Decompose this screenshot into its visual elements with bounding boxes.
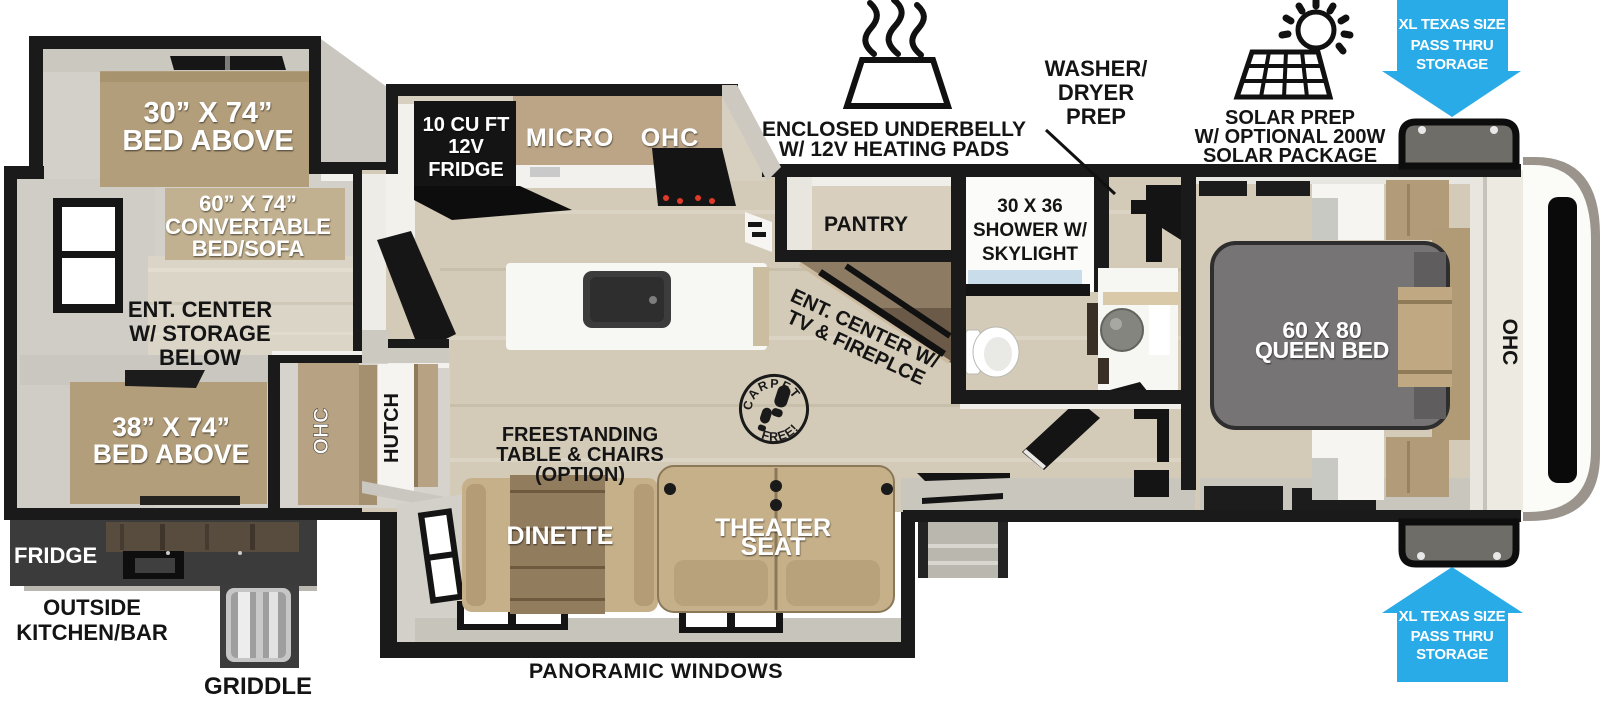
- svg-text:SEAT: SEAT: [741, 533, 806, 561]
- svg-text:TABLE & CHAIRS: TABLE & CHAIRS: [496, 444, 663, 466]
- svg-text:FRIDGE: FRIDGE: [428, 159, 504, 181]
- svg-text:ENT. CENTER: ENT. CENTER: [128, 297, 272, 322]
- svg-text:XL TEXAS SIZE: XL TEXAS SIZE: [1399, 608, 1506, 625]
- svg-text:60” X 74”: 60” X 74”: [199, 191, 297, 216]
- svg-text:PANTRY: PANTRY: [824, 213, 908, 236]
- svg-text:STORAGE: STORAGE: [1416, 56, 1488, 73]
- svg-text:XL TEXAS SIZE: XL TEXAS SIZE: [1399, 16, 1506, 33]
- svg-text:KITCHEN/BAR: KITCHEN/BAR: [16, 620, 168, 645]
- svg-text:OUTSIDE: OUTSIDE: [43, 595, 141, 620]
- svg-text:PREP: PREP: [1066, 104, 1126, 129]
- svg-text:OHC: OHC: [310, 408, 333, 455]
- svg-text:OHC: OHC: [1498, 319, 1521, 366]
- svg-text:10 CU FT: 10 CU FT: [423, 114, 510, 136]
- svg-text:OHC: OHC: [641, 124, 700, 152]
- svg-text:W/ STORAGE: W/ STORAGE: [129, 321, 270, 346]
- svg-text:W/ 12V HEATING PADS: W/ 12V HEATING PADS: [779, 138, 1009, 161]
- svg-text:(OPTION): (OPTION): [535, 464, 625, 486]
- svg-text:38” X 74”: 38” X 74”: [112, 412, 230, 442]
- svg-text:WASHER/: WASHER/: [1045, 56, 1148, 81]
- svg-text:30 X 36: 30 X 36: [997, 196, 1063, 217]
- svg-text:HUTCH: HUTCH: [381, 393, 403, 463]
- svg-text:PASS THRU: PASS THRU: [1411, 628, 1494, 645]
- svg-text:BED ABOVE: BED ABOVE: [122, 125, 293, 157]
- svg-text:DINETTE: DINETTE: [507, 522, 614, 550]
- svg-text:BED/SOFA: BED/SOFA: [192, 236, 305, 261]
- svg-text:PASS THRU: PASS THRU: [1411, 37, 1494, 54]
- svg-text:STORAGE: STORAGE: [1416, 646, 1488, 663]
- svg-text:GRIDDLE: GRIDDLE: [204, 673, 312, 700]
- svg-text:QUEEN BED: QUEEN BED: [1255, 337, 1389, 363]
- svg-text:BED ABOVE: BED ABOVE: [93, 439, 250, 469]
- svg-text:DRYER: DRYER: [1058, 80, 1134, 105]
- svg-text:BELOW: BELOW: [159, 345, 241, 370]
- svg-text:SOLAR PACKAGE: SOLAR PACKAGE: [1203, 145, 1377, 167]
- svg-text:FREESTANDING: FREESTANDING: [502, 424, 658, 446]
- svg-text:PANORAMIC WINDOWS: PANORAMIC WINDOWS: [529, 659, 783, 683]
- svg-text:SHOWER W/: SHOWER W/: [973, 220, 1088, 241]
- svg-text:FRIDGE: FRIDGE: [14, 543, 97, 568]
- svg-text:MICRO: MICRO: [526, 124, 614, 152]
- svg-text:SKYLIGHT: SKYLIGHT: [982, 244, 1078, 265]
- svg-text:12V: 12V: [448, 136, 484, 158]
